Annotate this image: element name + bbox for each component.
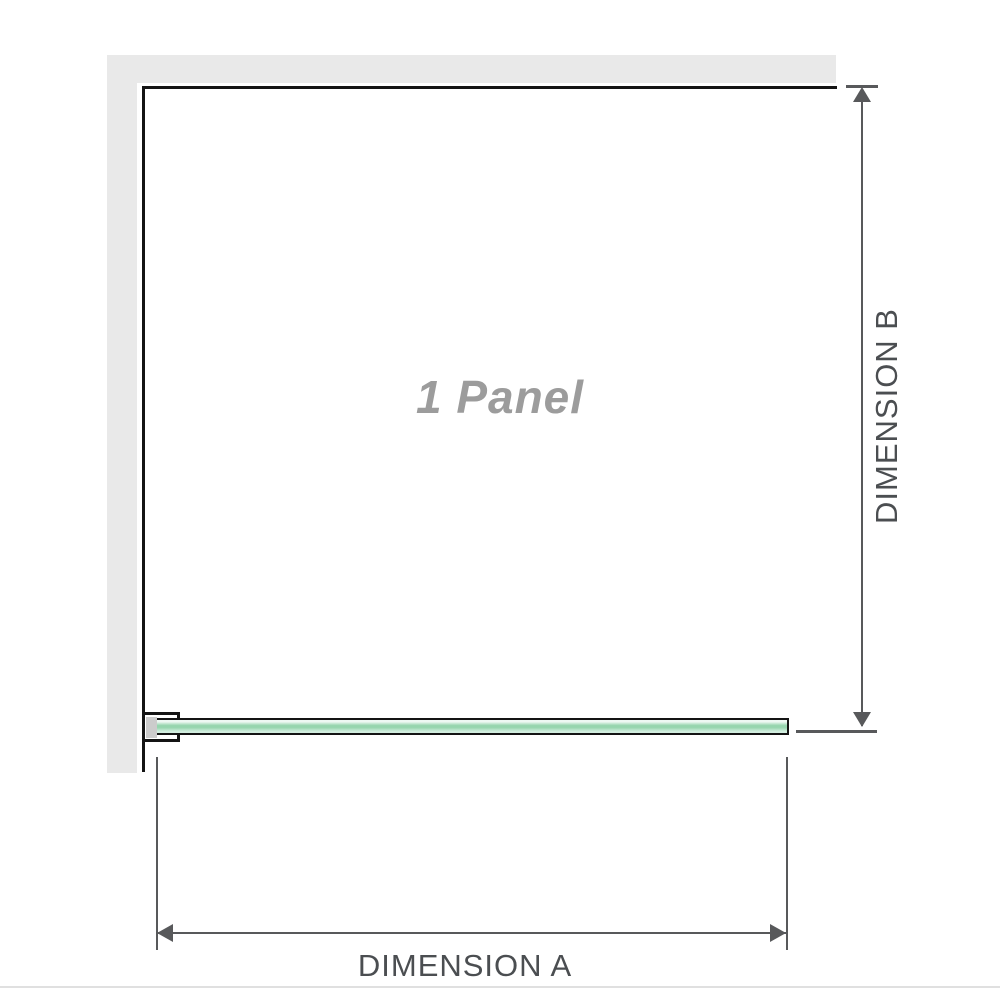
dimension-a-line (158, 932, 786, 934)
dimension-b-label: DIMENSION B (869, 308, 905, 524)
dimension-a-label: DIMENSION A (358, 948, 572, 984)
dimension-b-line (861, 89, 863, 726)
dimension-b-arrowhead-bottom-icon (853, 712, 871, 727)
dimension-a-arrowhead-right-icon (770, 924, 786, 942)
panel-outline-left (142, 86, 145, 772)
wall-bracket-liner (146, 717, 157, 738)
dimension-b-arrowhead-top-icon (853, 87, 871, 102)
glass-panel (157, 718, 789, 735)
dimension-b-tick-bottom (796, 730, 877, 733)
wall-top (107, 55, 836, 83)
panel-label: 1 Panel (416, 370, 584, 424)
wall-left (107, 55, 137, 773)
panel-outline-top (142, 86, 837, 89)
dimension-a-extension-left (156, 757, 158, 950)
dimension-diagram: 1 Panel DIMENSION B DIMENSION A (0, 0, 1000, 1000)
dimension-a-arrowhead-left-icon (157, 924, 173, 942)
dimension-a-extension-right (786, 757, 788, 950)
bottom-divider (0, 986, 1000, 988)
